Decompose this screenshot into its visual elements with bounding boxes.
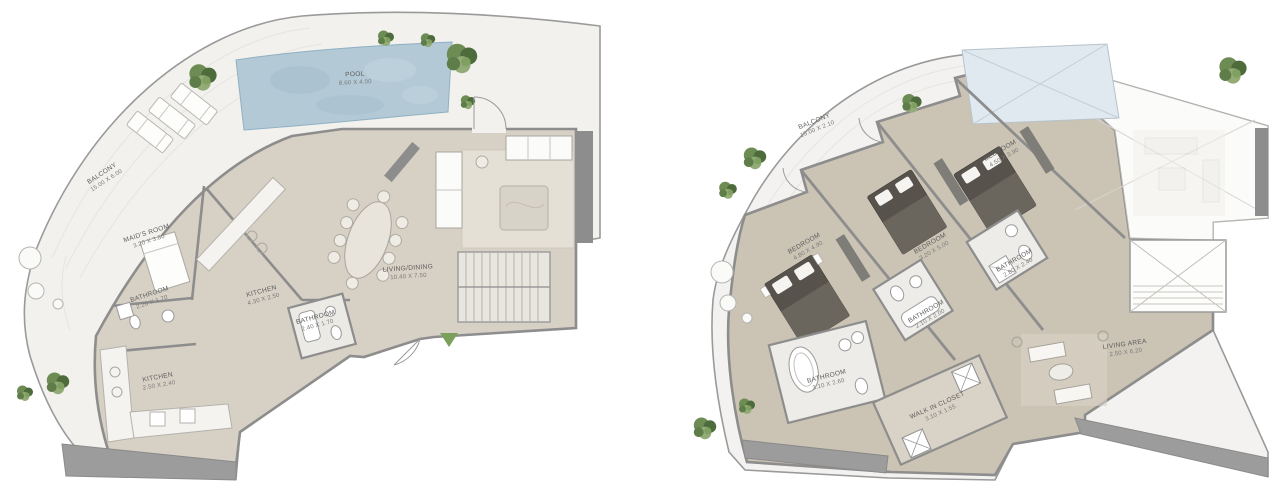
- stairs: [458, 252, 550, 322]
- living-area-furniture: [1012, 331, 1108, 406]
- floor-plan-b: BALCONY 15.00 X 2.10 BEDROOM 4.50 X 3.90…: [655, 0, 1280, 494]
- void-stairs: [1130, 240, 1226, 312]
- edge-wall-b: [1255, 128, 1268, 216]
- glass-skylight: [962, 44, 1119, 124]
- floor-plans-canvas: BALCONY 15.00 X 6.00 POOL 8.60 X 4.00 MA…: [0, 0, 1280, 494]
- tv-wall: [577, 131, 593, 243]
- floor-plan-a: BALCONY 15.00 X 6.00 POOL 8.60 X 4.00 MA…: [0, 0, 640, 494]
- entry-marker: [440, 333, 458, 347]
- faint-living-room: [1133, 130, 1225, 216]
- svg-text:POOL: POOL: [345, 70, 365, 78]
